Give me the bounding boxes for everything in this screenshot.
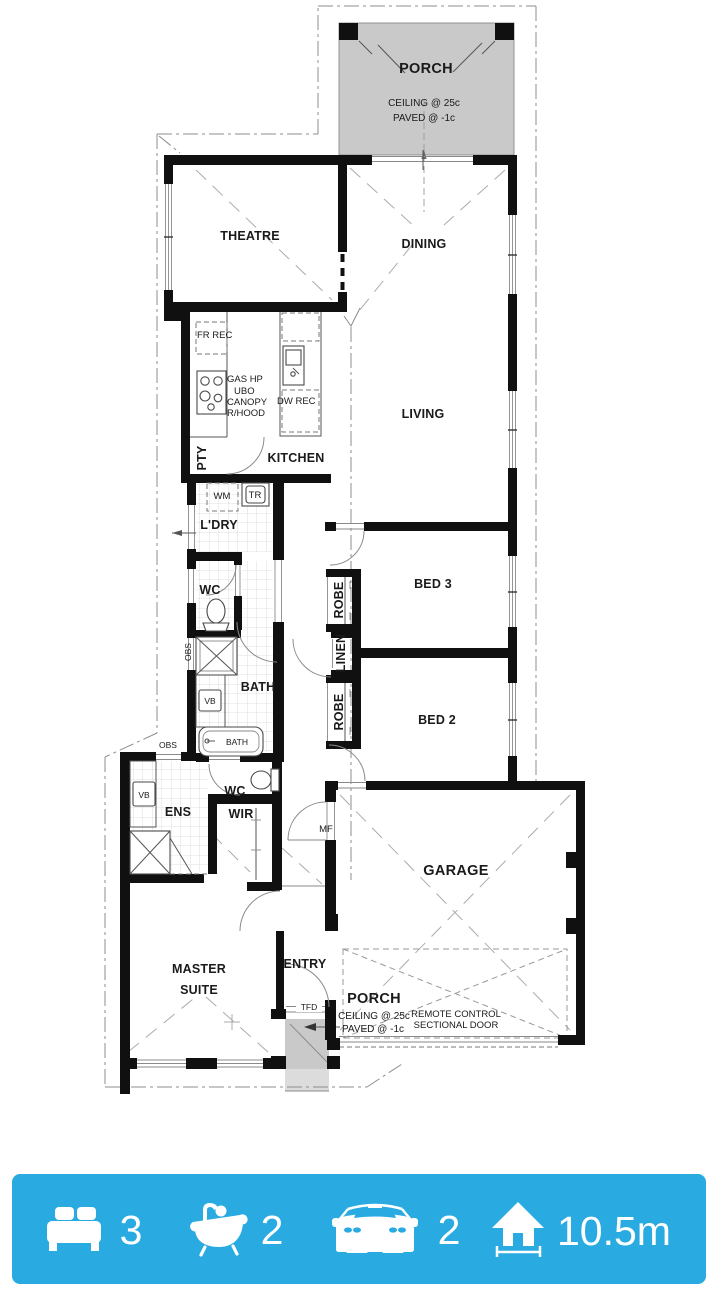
svg-text:KITCHEN: KITCHEN (268, 451, 325, 465)
svg-text:LINEN: LINEN (334, 634, 348, 673)
svg-text:PAVED @ -1c: PAVED @ -1c (393, 113, 455, 124)
svg-text:ROBE: ROBE (332, 694, 346, 731)
svg-text:R/HOOD: R/HOOD (227, 408, 265, 419)
svg-text:DINING: DINING (402, 237, 447, 251)
svg-text:GARAGE: GARAGE (423, 863, 488, 879)
svg-text:SUITE: SUITE (180, 983, 218, 997)
svg-text:GAS HP: GAS HP (227, 374, 263, 385)
svg-text:OBS: OBS (159, 740, 177, 750)
svg-text:TR: TR (249, 490, 262, 501)
svg-text:WC: WC (199, 583, 220, 597)
svg-text:LIVING: LIVING (402, 407, 445, 421)
svg-text:DW REC: DW REC (277, 396, 316, 407)
svg-text:CANOPY: CANOPY (227, 397, 268, 408)
svg-text:PORCH: PORCH (347, 991, 401, 1007)
svg-text:VB: VB (204, 696, 216, 706)
svg-text:OBS: OBS (183, 643, 193, 661)
svg-text:BATH: BATH (226, 737, 248, 747)
svg-text:THEATRE: THEATRE (220, 229, 280, 243)
svg-text:10.5m: 10.5m (557, 1208, 671, 1254)
svg-text:BED 3: BED 3 (414, 577, 452, 591)
svg-text:WM: WM (214, 491, 231, 502)
svg-text:ROBE: ROBE (332, 582, 346, 619)
svg-text:REMOTE CONTROL: REMOTE CONTROL (411, 1009, 501, 1020)
svg-text:WIR: WIR (229, 807, 254, 821)
svg-text:ENTRY: ENTRY (284, 957, 327, 971)
svg-text:BED 2: BED 2 (418, 713, 456, 727)
svg-text:PORCH: PORCH (399, 61, 453, 77)
svg-text:TFD: TFD (301, 1002, 318, 1012)
svg-text:2: 2 (438, 1207, 461, 1253)
svg-text:MASTER: MASTER (172, 962, 226, 976)
svg-text:3: 3 (120, 1207, 143, 1253)
svg-text:VB: VB (138, 790, 150, 800)
svg-text:UBO: UBO (234, 386, 255, 397)
svg-text:PAVED @ -1c: PAVED @ -1c (342, 1024, 404, 1035)
svg-text:BATH: BATH (241, 680, 276, 694)
svg-text:SECTIONAL DOOR: SECTIONAL DOOR (414, 1020, 499, 1031)
svg-text:ENS: ENS (165, 805, 191, 819)
svg-text:MF: MF (319, 824, 333, 835)
svg-text:CEILING @ 25c: CEILING @ 25c (338, 1011, 410, 1022)
svg-text:L'DRY: L'DRY (200, 518, 238, 532)
svg-text:WC: WC (224, 784, 245, 798)
svg-text:FR REC: FR REC (197, 330, 233, 341)
svg-text:PTY: PTY (195, 445, 209, 470)
svg-text:CEILING @ 25c: CEILING @ 25c (388, 98, 460, 109)
svg-text:2: 2 (261, 1207, 284, 1253)
